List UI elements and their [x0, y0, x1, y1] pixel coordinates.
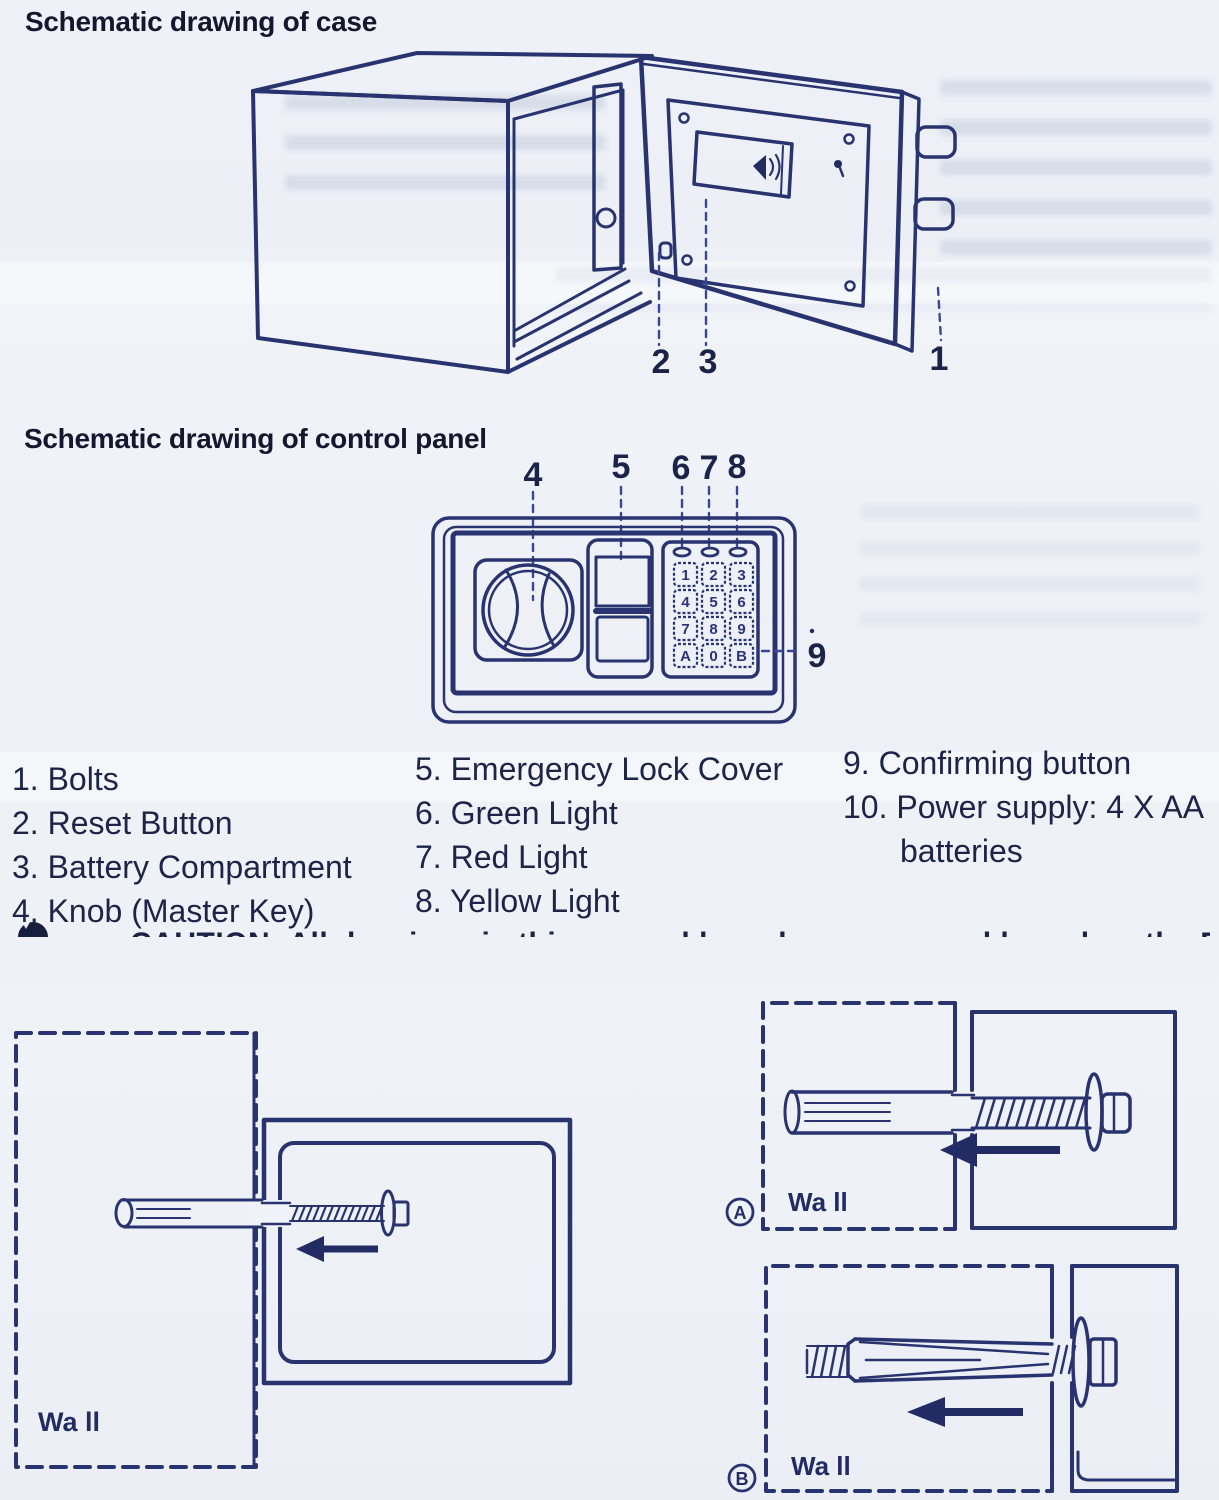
callout-5: 5: [612, 448, 631, 486]
callout-6: 6: [672, 449, 691, 487]
parts-list-column-3: 9. Confirming button 10. Power supply: 4…: [843, 741, 1204, 873]
case-front-face: [253, 91, 508, 372]
bolt-head: [394, 1202, 408, 1225]
push-arrow-icon: [940, 1133, 1060, 1167]
anchor-bolt-a: [785, 1074, 1130, 1150]
wall-mount-diagram-b: B Wa ll: [729, 1266, 1177, 1491]
parts-list-column-2: 5. Emergency Lock Cover 6. Green Light 7…: [415, 747, 783, 923]
svg-text:A: A: [680, 648, 691, 665]
svg-text:9: 9: [737, 621, 745, 638]
badge-b: B: [736, 1469, 749, 1489]
knob-master-key: [475, 560, 582, 660]
wall-label: Wa ll: [788, 1187, 848, 1217]
washer-icon: [1086, 1074, 1102, 1150]
wall-label: Wa ll: [38, 1407, 100, 1437]
callout-8: 8: [728, 448, 747, 486]
push-arrow-icon: [907, 1397, 1023, 1427]
wall-label: Wa ll: [791, 1451, 851, 1481]
badge-a: A: [734, 1203, 747, 1223]
callout-2: 2: [652, 343, 671, 381]
callout-3: 3: [699, 343, 718, 381]
manual-page: Schematic drawing of case Schematic draw…: [0, 0, 1219, 1500]
parts-list-item: batteries: [843, 829, 1204, 873]
callout-9: 9: [808, 637, 827, 675]
wall-panel: [16, 1033, 256, 1467]
screw-icon: [680, 114, 689, 123]
parts-list-item: 9. Confirming button: [843, 741, 1204, 785]
safe-wall-outline: [972, 1012, 1175, 1228]
keyhole-icon: [834, 160, 842, 168]
parts-list-column-1: 1. Bolts 2. Reset Button 3. Battery Comp…: [12, 757, 352, 933]
screw-icon: [683, 256, 692, 265]
door-jamb: [594, 84, 621, 270]
svg-text:B: B: [736, 648, 747, 665]
hinge-hole-icon: [597, 209, 615, 227]
locking-bolt: [917, 127, 955, 157]
safe-case-diagram: 2 3 1: [253, 53, 955, 381]
callout-7: 7: [700, 449, 719, 487]
svg-text:0: 0: [709, 648, 717, 665]
bolt-head: [1102, 1094, 1130, 1132]
svg-text:2: 2: [709, 567, 717, 584]
callout-4: 4: [524, 456, 543, 494]
buzzer-icon: [753, 155, 766, 180]
svg-text:1: 1: [681, 567, 689, 584]
case-interior: [508, 90, 650, 372]
open-door: [641, 57, 955, 351]
washer-icon: [1073, 1318, 1089, 1406]
svg-text:5: 5: [709, 594, 717, 611]
locking-bolt: [915, 199, 953, 229]
wall-mount-diagram-a: A Wa ll: [727, 1003, 1175, 1229]
red-light-icon: [702, 548, 718, 556]
callout-1: 1: [930, 340, 949, 378]
keypad: 1 2 3 4 5 6 7 8 9 A 0 B: [663, 542, 758, 677]
control-panel-diagram: 4 5 6 7 8: [433, 448, 826, 722]
screw-icon: [846, 282, 855, 291]
green-light-icon: [674, 548, 690, 556]
push-arrow-icon: [296, 1236, 378, 1262]
parts-list-item: 6. Green Light: [415, 791, 783, 835]
parts-list-item: 7. Red Light: [415, 835, 783, 879]
wall-mount-diagram-floor: Wa ll: [16, 1033, 570, 1467]
keypad-keys: 1 2 3 4 5 6 7 8 9 A 0 B: [674, 563, 753, 667]
svg-text:6: 6: [737, 594, 745, 611]
reset-button: [660, 243, 671, 258]
parts-list-item: 3. Battery Compartment: [12, 845, 352, 889]
expansion-bolt-b: [807, 1318, 1116, 1406]
screw-icon: [845, 135, 854, 144]
caution-text: CAUTION: All drawings in this manual hav…: [130, 927, 1210, 937]
caution-note-clipped: CAUTION: All drawings in this manual hav…: [10, 917, 1210, 937]
battery-compartment: [694, 132, 792, 197]
svg-text:4: 4: [681, 594, 690, 611]
svg-text:7: 7: [681, 621, 689, 638]
yellow-light-icon: [730, 548, 746, 556]
parts-list-item: 1. Bolts: [12, 757, 352, 801]
parts-list-item: 5. Emergency Lock Cover: [415, 747, 783, 791]
svg-text:8: 8: [709, 621, 717, 638]
parts-list-item: 2. Reset Button: [12, 801, 352, 845]
svg-text:3: 3: [737, 567, 745, 584]
parts-list-item: 10. Power supply: 4 X AA: [843, 785, 1204, 829]
emergency-lock-cover: [588, 540, 652, 677]
caution-icon-notch: [22, 922, 30, 929]
